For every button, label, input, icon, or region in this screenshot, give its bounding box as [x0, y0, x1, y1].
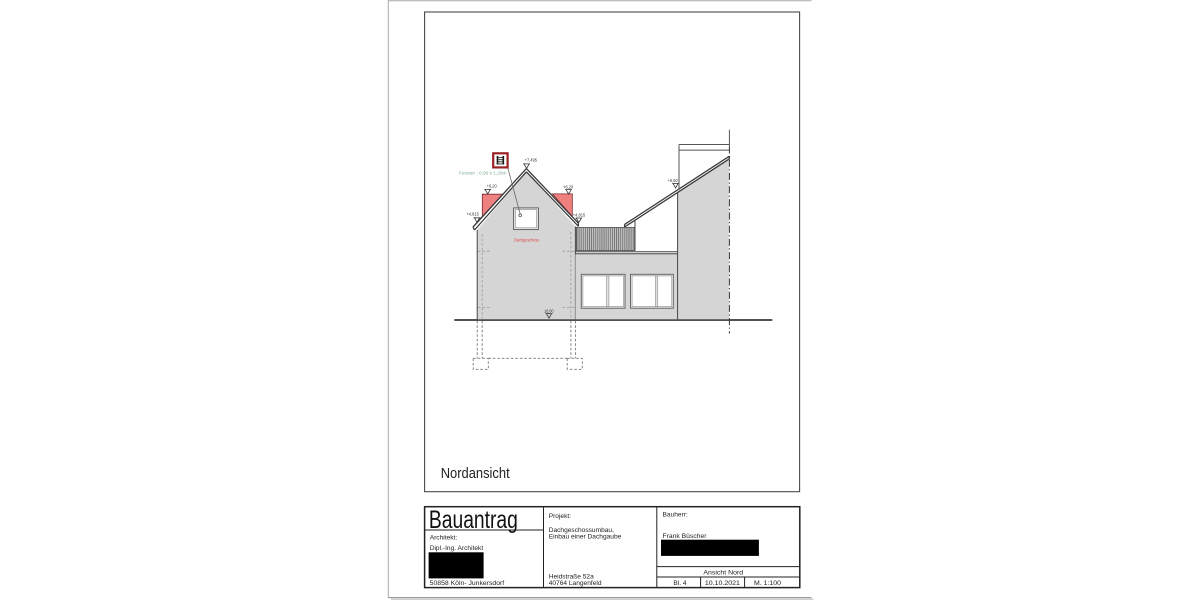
svg-text:Fenster : 0,96 x 1,26m: Fenster : 0,96 x 1,26m [459, 171, 507, 176]
svg-text:Dachgeschoss: Dachgeschoss [514, 238, 540, 243]
svg-text:50858 Köln- Junkersdorf: 50858 Köln- Junkersdorf [430, 580, 505, 587]
svg-text:+6,20: +6,20 [487, 184, 498, 189]
svg-text:Bl. 4: Bl. 4 [673, 580, 687, 587]
svg-text:+7,495: +7,495 [525, 158, 538, 163]
svg-text:40764 Langenfeld: 40764 Langenfeld [549, 580, 602, 587]
svg-text:M. 1:100: M. 1:100 [754, 580, 781, 587]
svg-text:+4,815: +4,815 [466, 212, 479, 217]
svg-text:+6,50: +6,50 [668, 178, 679, 183]
svg-text:Dipl.-Ing. Architekt: Dipl.-Ing. Architekt [430, 545, 484, 552]
svg-text:Bauantrag: Bauantrag [429, 506, 518, 534]
svg-text:+6,20: +6,20 [563, 184, 574, 189]
svg-text:±0,00: ±0,00 [544, 309, 554, 314]
svg-text:Einbau einer Dachgaube: Einbau einer Dachgaube [549, 533, 622, 540]
svg-text:Ansicht Nord: Ansicht Nord [703, 570, 743, 577]
svg-text:Frank Büscher: Frank Büscher [663, 533, 708, 540]
svg-text:Projekt:: Projekt: [549, 513, 572, 520]
svg-text:+4,815: +4,815 [573, 212, 586, 217]
svg-text:Nordansicht: Nordansicht [441, 466, 510, 482]
svg-text:10.10.2021: 10.10.2021 [705, 580, 740, 587]
svg-text:Bauherr:: Bauherr: [663, 512, 688, 519]
svg-text:Architekt:: Architekt: [430, 534, 458, 541]
